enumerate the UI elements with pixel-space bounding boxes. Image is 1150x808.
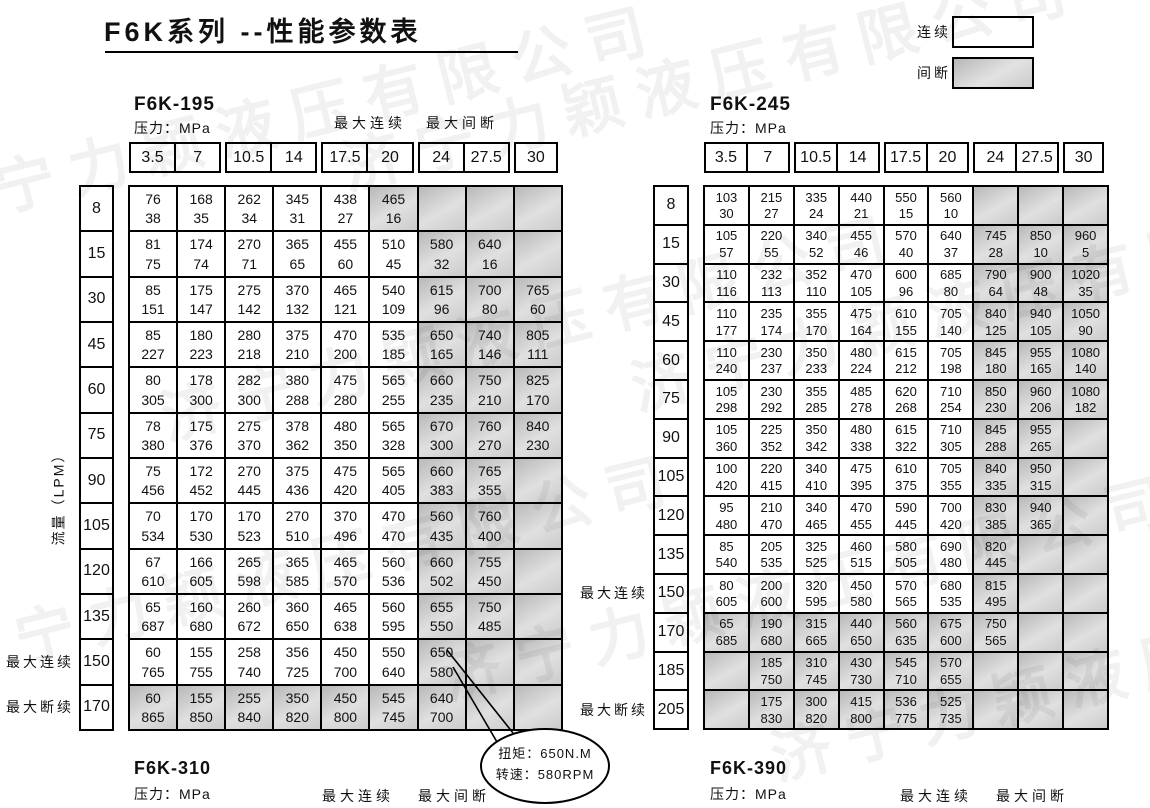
- torque-speed-cell: 220415: [749, 458, 794, 497]
- footer-f6k390-max-intermittent: 最大间断: [996, 786, 1068, 806]
- torque-value: 480: [850, 346, 872, 359]
- torque-value: 185: [760, 656, 782, 669]
- torque-speed-cell: 480338: [839, 419, 884, 458]
- speed-value: 210: [286, 347, 309, 361]
- torque-value: 235: [760, 307, 782, 320]
- speed-value: 71: [241, 257, 257, 271]
- torque-value: 105: [716, 423, 738, 436]
- callout-torque: 扭矩：650N.M: [482, 743, 608, 764]
- speed-value: 268: [895, 401, 917, 414]
- torque-value: 340: [805, 462, 827, 475]
- speed-value: 200: [334, 347, 357, 361]
- speed-value: 650: [850, 634, 872, 647]
- torque-value: 560: [430, 509, 453, 523]
- pressure-header-cell: 10.5: [796, 144, 836, 171]
- speed-value: 105: [1030, 324, 1052, 337]
- pressure-header-cell: 14: [270, 144, 315, 171]
- speed-value: 445: [985, 556, 1007, 569]
- speed-value: 765: [141, 665, 164, 679]
- speed-value: 725: [286, 665, 309, 679]
- torque-value: 540: [382, 283, 405, 297]
- torque-value: 105: [716, 385, 738, 398]
- torque-speed-cell: 80305: [129, 367, 177, 412]
- torque-speed-cell: 710305: [928, 419, 973, 458]
- speed-value: 505: [895, 556, 917, 569]
- torque-value: 790: [985, 268, 1007, 281]
- torque-value: 340: [805, 229, 827, 242]
- torque-speed-cell: 680535: [928, 574, 973, 613]
- torque-speed-cell: 65687: [129, 594, 177, 639]
- torque-speed-cell: 67610: [129, 549, 177, 594]
- speed-value: 510: [286, 529, 309, 543]
- flow-header-cell: 105: [654, 458, 688, 497]
- speed-value: 350: [334, 438, 357, 452]
- torque-value: 955: [1030, 346, 1052, 359]
- torque-value: 480: [334, 419, 357, 433]
- torque-value: 570: [895, 579, 917, 592]
- torque-value: 160: [189, 600, 212, 614]
- row-side-label: 最大连续: [2, 652, 74, 672]
- torque-value: 275: [238, 419, 261, 433]
- torque-speed-cell: 300820: [794, 690, 839, 729]
- torque-value: 438: [334, 192, 357, 206]
- torque-speed-cell: 170523: [225, 503, 273, 548]
- speed-value: 502: [430, 574, 453, 588]
- torque-value: 85: [145, 283, 161, 297]
- torque-speed-cell: 655550: [418, 594, 466, 639]
- flow-header-cell: 120: [80, 549, 113, 594]
- torque-speed-cell: 470200: [321, 322, 369, 367]
- torque-value: 220: [760, 229, 782, 242]
- f6k245-data-grid: 1033021527335244402155015560101055722055…: [703, 185, 1109, 730]
- speed-value: 638: [334, 619, 357, 633]
- speed-value: 146: [478, 347, 501, 361]
- torque-value: 103: [716, 191, 738, 204]
- torque-speed-cell: 282300: [225, 367, 273, 412]
- torque-speed-cell: [973, 186, 1018, 225]
- legend-intermittent-label: 间断: [917, 63, 951, 83]
- torque-speed-cell: 210470: [749, 496, 794, 535]
- torque-value: 205: [760, 540, 782, 553]
- flow-header-cell: 75: [80, 413, 113, 458]
- torque-speed-cell: 750565: [973, 613, 1018, 652]
- speed-value: 672: [238, 619, 261, 633]
- table-f6k195-pressure-label: 压力：MPa: [134, 118, 211, 138]
- speed-value: 436: [286, 483, 309, 497]
- footer-f6k390-title: F6K-390: [710, 758, 787, 779]
- speed-value: 840: [238, 710, 261, 724]
- speed-value: 680: [189, 619, 212, 633]
- torque-speed-cell: 765355: [466, 458, 514, 503]
- f6k195-data-grid: 7638168352623434531438274651681751747427…: [128, 185, 563, 731]
- torque-value: 805: [526, 328, 549, 342]
- speed-value: 450: [478, 574, 501, 588]
- speed-value: 680: [760, 634, 782, 647]
- flow-header-cell: 150: [654, 574, 688, 613]
- torque-value: 640: [478, 237, 501, 251]
- torque-speed-cell: 470105: [839, 264, 884, 303]
- torque-speed-cell: 315665: [794, 613, 839, 652]
- torque-value: 840: [526, 419, 549, 433]
- torque-speed-cell: 545745: [369, 685, 417, 730]
- speed-value: 322: [895, 440, 917, 453]
- torque-value: 180: [189, 328, 212, 342]
- torque-speed-cell: [514, 231, 562, 276]
- speed-value: 230: [526, 438, 549, 452]
- flow-header-cell: 170: [654, 613, 688, 652]
- torque-value: 960: [1075, 229, 1097, 242]
- speed-value: 655: [940, 673, 962, 686]
- speed-value: 48: [1033, 285, 1047, 298]
- torque-speed-cell: 17474: [177, 231, 225, 276]
- pressure-header-group: 2427.5: [973, 142, 1059, 173]
- speed-value: 495: [985, 595, 1007, 608]
- speed-value: 395: [850, 479, 872, 492]
- torque-speed-cell: 615212: [884, 341, 929, 380]
- torque-speed-cell: 955265: [1018, 419, 1063, 458]
- torque-speed-cell: 232113: [749, 264, 794, 303]
- torque-speed-cell: 830385: [973, 496, 1018, 535]
- torque-speed-cell: 85151: [129, 277, 177, 322]
- torque-value: 940: [1030, 501, 1052, 514]
- speed-value: 32: [434, 257, 450, 271]
- torque-value: 170: [189, 509, 212, 523]
- torque-value: 356: [286, 645, 309, 659]
- speed-value: 535: [940, 595, 962, 608]
- pressure-header-cell: 27.5: [1015, 144, 1057, 171]
- legend-continuous-label: 连续: [917, 22, 951, 42]
- torque-speed-cell: 570655: [928, 652, 973, 691]
- speed-value: 305: [141, 393, 164, 407]
- speed-value: 27: [338, 211, 354, 225]
- speed-value: 75: [145, 257, 161, 271]
- speed-value: 45: [386, 257, 402, 271]
- speed-value: 456: [141, 483, 164, 497]
- torque-speed-cell: 105298: [704, 380, 749, 419]
- torque-speed-cell: 560635: [884, 613, 929, 652]
- speed-value: 165: [1030, 362, 1052, 375]
- speed-value: 338: [850, 440, 872, 453]
- speed-value: 10: [944, 207, 958, 220]
- speed-value: 850: [189, 710, 212, 724]
- torque-value: 270: [238, 464, 261, 478]
- pressure-header-cell: 10.5: [227, 144, 270, 171]
- torque-value: 670: [430, 419, 453, 433]
- speed-value: 288: [985, 440, 1007, 453]
- pressure-header-cell: 30: [1065, 144, 1102, 171]
- torque-value: 315: [805, 617, 827, 630]
- torque-speed-cell: 660383: [418, 458, 466, 503]
- torque-speed-cell: 705198: [928, 341, 973, 380]
- torque-speed-cell: 230292: [749, 380, 794, 419]
- torque-speed-cell: 166605: [177, 549, 225, 594]
- flow-header-cell: 15: [80, 231, 113, 276]
- speed-value: 687: [141, 619, 164, 633]
- speed-value: 218: [238, 347, 261, 361]
- speed-value: 155: [895, 324, 917, 337]
- torque-speed-cell: 705355: [928, 458, 973, 497]
- speed-value: 380: [141, 438, 164, 452]
- speed-value: 240: [716, 362, 738, 375]
- speed-value: 580: [850, 595, 872, 608]
- torque-value: 1080: [1071, 385, 1100, 398]
- torque-value: 175: [760, 695, 782, 708]
- torque-value: 190: [760, 617, 782, 630]
- torque-speed-cell: 750485: [466, 594, 514, 639]
- torque-speed-cell: 355170: [794, 302, 839, 341]
- torque-speed-cell: 615322: [884, 419, 929, 458]
- torque-speed-cell: 340465: [794, 496, 839, 535]
- torque-speed-cell: 105090: [1063, 302, 1108, 341]
- table-f6k245-pressure-label: 压力：MPa: [710, 118, 787, 138]
- torque-speed-cell: 110240: [704, 341, 749, 380]
- torque-value: 262: [238, 192, 261, 206]
- torque-value: 350: [805, 346, 827, 359]
- torque-value: 75: [145, 464, 161, 478]
- speed-value: 376: [189, 438, 212, 452]
- torque-speed-cell: 545710: [884, 652, 929, 691]
- torque-value: 350: [805, 423, 827, 436]
- speed-value: 600: [760, 595, 782, 608]
- speed-value: 16: [386, 211, 402, 225]
- torque-value: 80: [719, 579, 733, 592]
- torque-speed-cell: 45546: [839, 225, 884, 264]
- torque-speed-cell: [704, 652, 749, 691]
- torque-speed-cell: 58032: [418, 231, 466, 276]
- torque-speed-cell: 185750: [749, 652, 794, 691]
- speed-value: 292: [760, 401, 782, 414]
- speed-value: 170: [805, 324, 827, 337]
- torque-speed-cell: 46516: [369, 186, 417, 231]
- torque-speed-cell: 26234: [225, 186, 273, 231]
- torque-value: 380: [286, 373, 309, 387]
- torque-speed-cell: 80605: [704, 574, 749, 613]
- torque-value: 560: [382, 600, 405, 614]
- speed-value: 400: [478, 529, 501, 543]
- speed-value: 300: [189, 393, 212, 407]
- speed-value: 820: [805, 712, 827, 725]
- torque-speed-cell: 155755: [177, 639, 225, 684]
- torque-speed-cell: 255840: [225, 685, 273, 730]
- torque-value: 560: [895, 617, 917, 630]
- speed-value: 233: [805, 362, 827, 375]
- footer-f6k310-title: F6K-310: [134, 758, 211, 779]
- speed-value: 598: [238, 574, 261, 588]
- row-side-label: 最大连续: [556, 583, 648, 603]
- datasheet-page: F6K系列 --性能参数表 连续 间断 F6K-195 压力：MPa 最大连续 …: [0, 0, 1150, 808]
- torque-value: 415: [850, 695, 872, 708]
- torque-value: 960: [1030, 385, 1052, 398]
- torque-value: 580: [430, 237, 453, 251]
- torque-speed-cell: 525735: [928, 690, 973, 729]
- torque-value: 660: [430, 464, 453, 478]
- torque-value: 615: [430, 283, 453, 297]
- torque-value: 155: [189, 645, 212, 659]
- legend-intermittent-swatch: [952, 57, 1034, 89]
- torque-speed-cell: 9605: [1063, 225, 1108, 264]
- torque-speed-cell: 620268: [884, 380, 929, 419]
- torque-value: 710: [940, 423, 962, 436]
- flow-header-cell: 205: [654, 690, 688, 729]
- speed-value: 96: [899, 285, 913, 298]
- torque-value: 955: [1030, 423, 1052, 436]
- torque-value: 470: [334, 328, 357, 342]
- speed-value: 298: [716, 401, 738, 414]
- torque-speed-cell: 840335: [973, 458, 1018, 497]
- torque-value: 470: [850, 268, 872, 281]
- pressure-header-cell: 14: [836, 144, 878, 171]
- torque-value: 560: [940, 191, 962, 204]
- speed-value: 212: [895, 362, 917, 375]
- torque-speed-cell: 460515: [839, 535, 884, 574]
- torque-value: 950: [1030, 462, 1052, 475]
- speed-value: 30: [719, 207, 733, 220]
- speed-value: 830: [760, 712, 782, 725]
- page-title: F6K系列 --性能参数表: [104, 10, 422, 49]
- torque-speed-cell: 21527: [749, 186, 794, 225]
- speed-value: 109: [382, 302, 405, 316]
- torque-speed-cell: 85540: [704, 535, 749, 574]
- torque-speed-cell: 16835: [177, 186, 225, 231]
- torque-value: 675: [940, 617, 962, 630]
- speed-value: 142: [238, 302, 261, 316]
- speed-value: 328: [382, 438, 405, 452]
- torque-speed-cell: 450800: [321, 685, 369, 730]
- torque-speed-cell: [1063, 690, 1108, 729]
- pressure-header-cell: 24: [420, 144, 463, 171]
- torque-value: 100: [716, 462, 738, 475]
- speed-value: 470: [382, 529, 405, 543]
- torque-value: 320: [805, 579, 827, 592]
- flow-header-cell: 135: [80, 594, 113, 639]
- torque-value: 685: [940, 268, 962, 281]
- speed-value: 342: [805, 440, 827, 453]
- torque-speed-cell: 34052: [794, 225, 839, 264]
- speed-value: 755: [189, 665, 212, 679]
- torque-speed-cell: 68580: [928, 264, 973, 303]
- torque-value: 705: [940, 346, 962, 359]
- flow-header-cell: 135: [654, 535, 688, 574]
- speed-value: 410: [805, 479, 827, 492]
- torque-value: 430: [850, 656, 872, 669]
- torque-value: 352: [805, 268, 827, 281]
- torque-speed-cell: [514, 685, 562, 730]
- torque-speed-cell: 350820: [273, 685, 321, 730]
- torque-value: 1020: [1071, 268, 1100, 281]
- torque-speed-cell: 580505: [884, 535, 929, 574]
- torque-value: 565: [382, 373, 405, 387]
- torque-value: 65: [719, 617, 733, 630]
- speed-value: 111: [527, 347, 548, 361]
- speed-value: 237: [760, 362, 782, 375]
- torque-speed-cell: 275142: [225, 277, 273, 322]
- speed-value: 640: [382, 665, 405, 679]
- speed-value: 420: [940, 518, 962, 531]
- torque-speed-cell: 940365: [1018, 496, 1063, 535]
- torque-speed-cell: 22055: [749, 225, 794, 264]
- torque-value: 440: [850, 617, 872, 630]
- torque-value: 65: [145, 600, 161, 614]
- speed-value: 420: [716, 479, 738, 492]
- speed-value: 445: [895, 518, 917, 531]
- pressure-header-cell: 20: [366, 144, 411, 171]
- torque-value: 680: [940, 579, 962, 592]
- torque-value: 230: [760, 385, 782, 398]
- max-intermittent-column-label: 最大间断: [412, 113, 512, 133]
- torque-speed-cell: 160680: [177, 594, 225, 639]
- torque-speed-cell: 710254: [928, 380, 973, 419]
- flow-header-column: 8153045607590105120135150170185205: [653, 185, 689, 730]
- speed-value: 710: [895, 673, 917, 686]
- torque-speed-cell: 565255: [369, 367, 417, 412]
- speed-value: 496: [334, 529, 357, 543]
- speed-value: 38: [145, 211, 161, 225]
- torque-speed-cell: 440650: [839, 613, 884, 652]
- speed-value: 206: [1030, 401, 1052, 414]
- speed-value: 580: [430, 665, 453, 679]
- speed-value: 565: [895, 595, 917, 608]
- torque-speed-cell: [1063, 458, 1108, 497]
- torque-speed-cell: 60865: [129, 685, 177, 730]
- torque-value: 375: [286, 464, 309, 478]
- speed-value: 74: [193, 257, 209, 271]
- speed-value: 31: [290, 211, 306, 225]
- flow-header-cell: 8: [80, 186, 113, 231]
- speed-value: 523: [238, 529, 261, 543]
- pressure-header-cell: 7: [174, 144, 219, 171]
- torque-speed-cell: 78380: [129, 413, 177, 458]
- speed-value: 745: [382, 710, 405, 724]
- torque-value: 845: [985, 423, 1007, 436]
- torque-speed-cell: 100420: [704, 458, 749, 497]
- pressure-header-group: 17.520: [321, 142, 413, 173]
- torque-speed-cell: 350233: [794, 341, 839, 380]
- speed-value: 600: [940, 634, 962, 647]
- torque-speed-cell: 825170: [514, 367, 562, 412]
- torque-value: 378: [286, 419, 309, 433]
- torque-value: 255: [238, 691, 261, 705]
- torque-speed-cell: 34531: [273, 186, 321, 231]
- torque-value: 655: [430, 600, 453, 614]
- speed-value: 35: [1078, 285, 1092, 298]
- torque-value: 510: [382, 237, 405, 251]
- speed-value: 16: [482, 257, 498, 271]
- speed-value: 285: [805, 401, 827, 414]
- torque-speed-cell: 565405: [369, 458, 417, 503]
- torque-value: 560: [382, 555, 405, 569]
- torque-value: 310: [805, 656, 827, 669]
- torque-speed-cell: 465121: [321, 277, 369, 322]
- torque-speed-cell: 325525: [794, 535, 839, 574]
- speed-value: 300: [238, 393, 261, 407]
- torque-speed-cell: [514, 186, 562, 231]
- torque-value: 260: [238, 600, 261, 614]
- speed-value: 125: [985, 324, 1007, 337]
- torque-speed-cell: 820445: [973, 535, 1018, 574]
- speed-value: 24: [809, 207, 823, 220]
- torque-value: 755: [478, 555, 501, 569]
- torque-speed-cell: 760400: [466, 503, 514, 548]
- torque-speed-cell: 470470: [369, 503, 417, 548]
- torque-value: 174: [189, 237, 212, 251]
- torque-speed-cell: 475164: [839, 302, 884, 341]
- torque-value: 825: [526, 373, 549, 387]
- torque-speed-cell: [1063, 419, 1108, 458]
- torque-speed-cell: 375210: [273, 322, 321, 367]
- speed-value: 65: [290, 257, 306, 271]
- speed-value: 198: [940, 362, 962, 375]
- speed-value: 170: [526, 393, 549, 407]
